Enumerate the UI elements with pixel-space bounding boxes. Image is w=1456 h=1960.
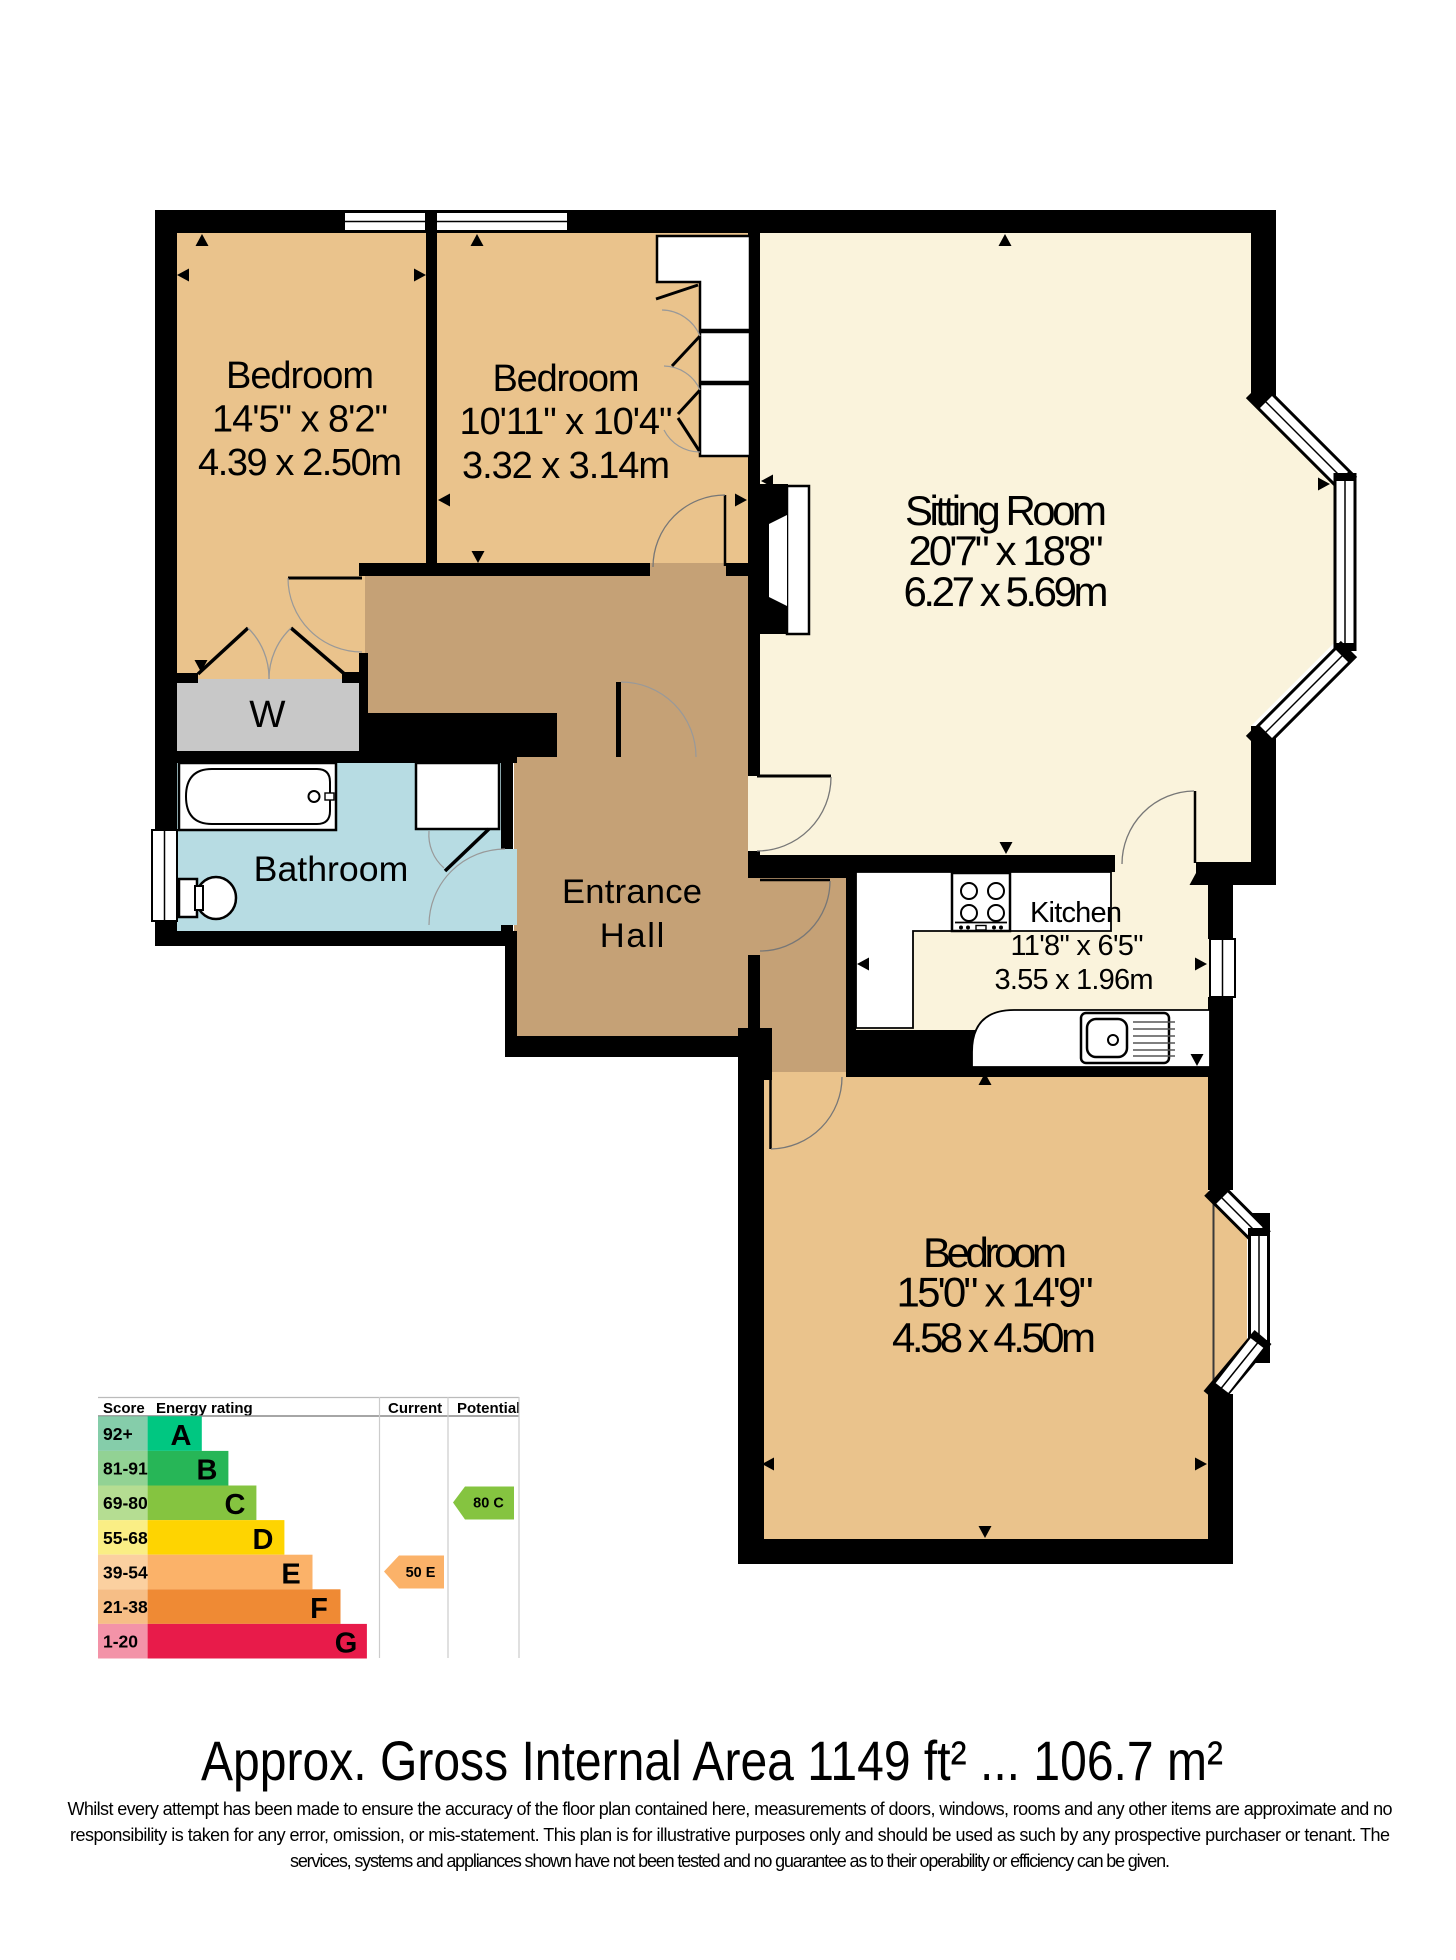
svg-text:G: G (335, 1628, 358, 1660)
svg-text:Entrance: Entrance (562, 873, 702, 911)
svg-text:Energy rating: Energy rating (156, 1400, 253, 1417)
svg-text:Score: Score (103, 1400, 145, 1417)
svg-text:4.39 x 2.50m: 4.39 x 2.50m (198, 442, 402, 484)
svg-text:C: C (225, 1489, 246, 1521)
svg-text:14'5" x 8'2": 14'5" x 8'2" (212, 399, 388, 441)
svg-text:W: W (249, 693, 286, 736)
svg-text:responsibility is taken for an: responsibility is taken for any error, o… (70, 1825, 1390, 1845)
svg-text:Current: Current (388, 1400, 442, 1417)
svg-text:69-80: 69-80 (103, 1493, 148, 1513)
svg-text:10'11" x 10'4": 10'11" x 10'4" (460, 401, 673, 443)
svg-text:Bathroom: Bathroom (254, 849, 409, 889)
svg-text:1-20: 1-20 (103, 1632, 138, 1652)
svg-text:services, systems and applianc: services, systems and appliances shown h… (290, 1851, 1170, 1871)
svg-text:20'7" x 18'8": 20'7" x 18'8" (909, 527, 1104, 574)
svg-text:3.32 x 3.14m: 3.32 x 3.14m (462, 445, 670, 487)
svg-text:21-38: 21-38 (103, 1597, 148, 1617)
svg-text:Approx. Gross Internal Area 11: Approx. Gross Internal Area 1149 ft² ...… (201, 1729, 1223, 1792)
svg-text:Hall: Hall (600, 917, 665, 955)
svg-text:B: B (197, 1455, 218, 1487)
svg-text:E: E (281, 1558, 300, 1590)
svg-text:Potential: Potential (457, 1400, 520, 1417)
svg-text:D: D (253, 1524, 274, 1556)
svg-text:55-68: 55-68 (103, 1528, 148, 1548)
svg-text:11'8" x 6'5": 11'8" x 6'5" (1011, 930, 1144, 962)
svg-text:39-54: 39-54 (103, 1562, 148, 1582)
svg-text:50 E: 50 E (406, 1565, 436, 1581)
svg-text:F: F (310, 1593, 328, 1625)
svg-text:Bedroom: Bedroom (493, 358, 640, 400)
svg-text:6.27 x 5.69m: 6.27 x 5.69m (904, 568, 1109, 615)
svg-text:A: A (171, 1420, 192, 1452)
svg-text:3.55 x 1.96m: 3.55 x 1.96m (995, 964, 1154, 996)
svg-text:92+: 92+ (103, 1424, 133, 1444)
svg-text:Bedroom: Bedroom (226, 355, 374, 397)
svg-text:15'0" x 14'9": 15'0" x 14'9" (897, 1269, 1094, 1316)
svg-text:4.58 x 4.50m: 4.58 x 4.50m (892, 1314, 1096, 1361)
svg-text:80 C: 80 C (473, 1496, 504, 1512)
svg-text:Whilst every attempt has been: Whilst every attempt has been made to en… (68, 1799, 1393, 1819)
svg-text:Kitchen: Kitchen (1030, 897, 1122, 929)
svg-text:81-91: 81-91 (103, 1459, 148, 1479)
